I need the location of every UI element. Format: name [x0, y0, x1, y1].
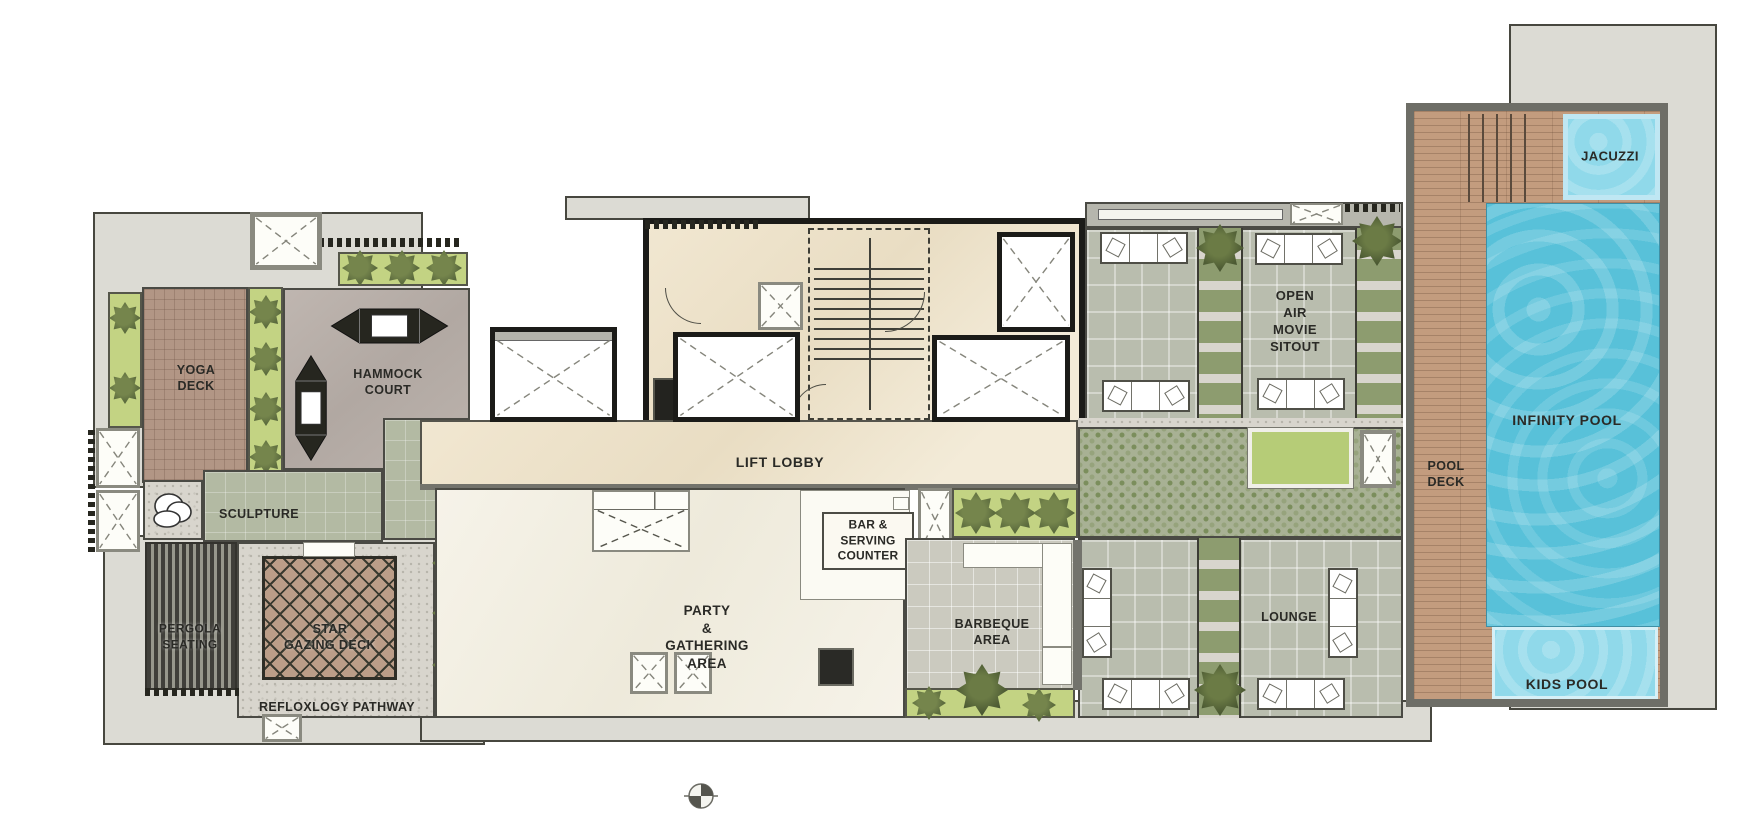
sculpture-boulders-icon — [145, 482, 201, 538]
elevator-icon — [673, 332, 800, 422]
tree-icon — [1194, 664, 1246, 716]
lawn-patch — [1248, 428, 1353, 488]
service-shaft-icon — [630, 652, 668, 694]
edge-hatch — [88, 430, 95, 552]
label-bar-serving-counter: BAR & SERVING COUNTER — [838, 518, 899, 565]
plant-icon — [249, 440, 283, 474]
barbeque-lounge-wall — [1073, 540, 1082, 690]
movie-band-hatch — [1345, 204, 1400, 212]
floor-plan-canvas: YOGA DECK HAMMOCK COURT SCULPTURE PERGOL… — [0, 0, 1747, 822]
star-gazing-deck-area — [262, 556, 397, 680]
hammock-icon — [293, 345, 329, 471]
pergola-bottom-hatch — [145, 688, 239, 696]
lift-shaft-icon — [1360, 430, 1396, 488]
label-barbeque-area: BARBEQUE AREA — [955, 616, 1030, 649]
elevator-icon — [490, 327, 617, 422]
deck-lap-lines — [1468, 114, 1526, 202]
party-planter-box — [592, 490, 690, 552]
movie-screen — [1098, 209, 1283, 220]
plant-icon — [109, 302, 141, 334]
label-open-air-movie-sitout: OPEN AIR MOVIE SITOUT — [1270, 288, 1320, 356]
core-top-hatch — [645, 220, 760, 229]
barbeque-counter — [963, 543, 1048, 568]
plant-icon — [912, 686, 946, 720]
label-party-gathering-area: PARTY & GATHERING AREA — [665, 602, 749, 672]
sofa-icon — [1082, 568, 1112, 658]
label-pergola-seating: PERGOLA SEATING — [159, 621, 221, 652]
label-sculpture: SCULPTURE — [219, 506, 299, 522]
service-shaft-icon — [1290, 203, 1343, 225]
plant-icon — [249, 392, 283, 426]
sculpture-pad — [143, 480, 203, 540]
label-star-gazing-deck: STAR GAZING DECK — [284, 621, 376, 654]
sofa-icon — [1328, 568, 1358, 658]
stair-mid-rail — [869, 238, 871, 410]
service-box — [818, 648, 854, 686]
label-pool-deck: POOL DECK — [1427, 458, 1464, 491]
slab-core-parapet — [565, 196, 810, 220]
plant-icon — [1033, 492, 1075, 534]
pergola-seating-area — [145, 542, 237, 690]
plant-icon — [249, 295, 283, 329]
north-compass-icon — [684, 779, 718, 813]
tree-icon — [1352, 216, 1402, 266]
crossed-box-icon — [255, 217, 317, 265]
plant-icon — [1022, 688, 1056, 722]
label-infinity-pool: INFINITY POOL — [1512, 411, 1621, 429]
sofa-icon — [1255, 233, 1343, 265]
service-shaft-icon — [262, 714, 302, 742]
label-lounge: LOUNGE — [1261, 609, 1317, 625]
star-deck-step — [303, 542, 355, 557]
label-hammock-court: HAMMOCK COURT — [353, 366, 422, 399]
plant-icon — [384, 250, 420, 286]
sofa-icon — [1257, 378, 1345, 410]
green-pattern-courtyard — [1078, 427, 1403, 538]
plant-icon — [342, 250, 378, 286]
sofa-icon — [1102, 380, 1190, 412]
staircase — [808, 228, 930, 420]
sofa-icon — [1100, 232, 1188, 264]
duct-shaft-icon — [758, 282, 803, 330]
lift-shaft-icon — [250, 212, 322, 270]
elevator-icon — [932, 335, 1070, 422]
hammock-icon — [327, 306, 452, 346]
plant-icon — [994, 492, 1036, 534]
elevator-icon — [997, 232, 1075, 332]
barbeque-counter — [1042, 543, 1072, 647]
plant-icon — [109, 372, 141, 404]
tree-icon — [956, 664, 1008, 716]
label-refloxlogy-pathway: REFLOXLOGY PATHWAY — [259, 699, 415, 715]
label-jacuzzi: JACUZZI — [1581, 149, 1639, 166]
plant-icon — [426, 250, 462, 286]
sofa-icon — [1257, 678, 1345, 710]
service-shaft-icon — [96, 490, 140, 552]
service-shaft-icon — [96, 428, 140, 488]
plant-icon — [249, 342, 283, 376]
barbeque-counter — [1042, 647, 1072, 685]
sofa-icon — [1102, 678, 1190, 710]
label-kids-pool: KIDS POOL — [1526, 675, 1608, 693]
label-lift-lobby: LIFT LOBBY — [736, 453, 824, 471]
label-yoga-deck: YOGA DECK — [177, 362, 215, 395]
plant-icon — [955, 492, 997, 534]
bar-small-box — [893, 497, 909, 510]
tree-icon — [1196, 224, 1244, 272]
